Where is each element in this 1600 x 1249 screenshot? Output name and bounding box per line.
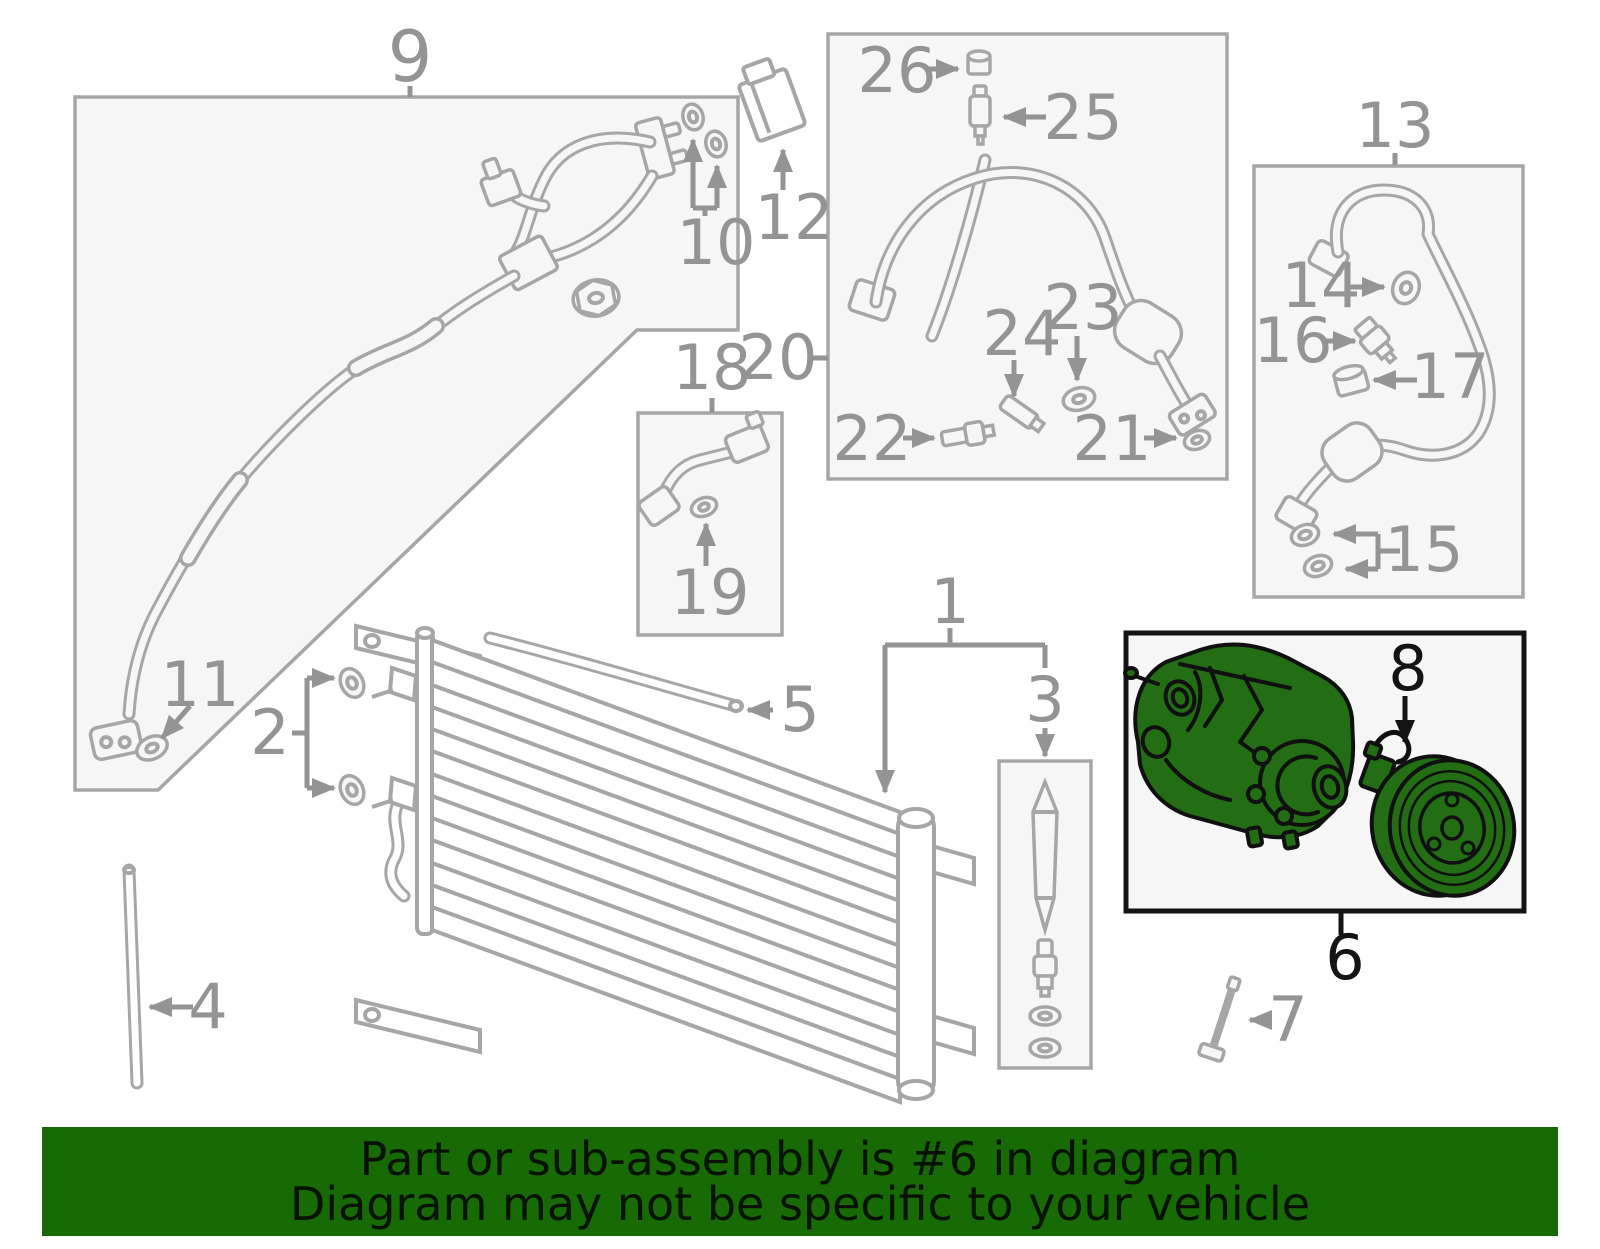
callout-12: 12 <box>755 187 834 249</box>
rod-4 <box>124 867 137 1083</box>
callout-6-highlighted[interactable]: 6 <box>1325 927 1364 989</box>
callout-21: 21 <box>1073 408 1152 470</box>
parts-diagram-page: 9 10 11 12 2 4 5 1 3 18 20 19 26 25 24 2… <box>0 0 1600 1249</box>
cap-26 <box>968 51 990 74</box>
drier-kit-box-3 <box>999 761 1091 1068</box>
valve-3 <box>1034 940 1056 996</box>
callout-4: 4 <box>188 976 227 1038</box>
note-banner-line2: Diagram may not be specific to your vehi… <box>290 1182 1310 1227</box>
bolt-7 <box>1198 974 1247 1061</box>
callout-22: 22 <box>833 408 912 470</box>
callout-15: 15 <box>1385 519 1464 581</box>
callout-9: 9 <box>388 22 433 92</box>
note-banner: Part or sub-assembly is #6 in diagram Di… <box>42 1127 1558 1236</box>
condenser-assembly <box>336 626 974 1102</box>
callout-7: 7 <box>1268 989 1307 1051</box>
callout-19: 19 <box>671 562 750 624</box>
bracket-12 <box>733 54 806 142</box>
note-banner-line1: Part or sub-assembly is #6 in diagram <box>360 1137 1241 1182</box>
callout-11: 11 <box>161 654 240 716</box>
callout-25: 25 <box>1044 87 1123 149</box>
callout-26: 26 <box>858 40 937 102</box>
callout-3: 3 <box>1025 669 1064 731</box>
callout-17: 17 <box>1411 346 1490 408</box>
callout-5: 5 <box>780 679 819 741</box>
callout-23: 23 <box>1044 277 1123 339</box>
callout-2: 2 <box>250 702 289 764</box>
mount-pins-2 <box>336 665 416 810</box>
callout-16: 16 <box>1254 310 1333 372</box>
callout-8-highlighted[interactable]: 8 <box>1388 638 1427 700</box>
callout-1: 1 <box>930 571 969 633</box>
callout-13: 13 <box>1356 95 1435 157</box>
highlighted-part-box-6[interactable] <box>1125 633 1527 935</box>
callout-20: 20 <box>739 327 818 389</box>
callout-10: 10 <box>677 212 756 274</box>
